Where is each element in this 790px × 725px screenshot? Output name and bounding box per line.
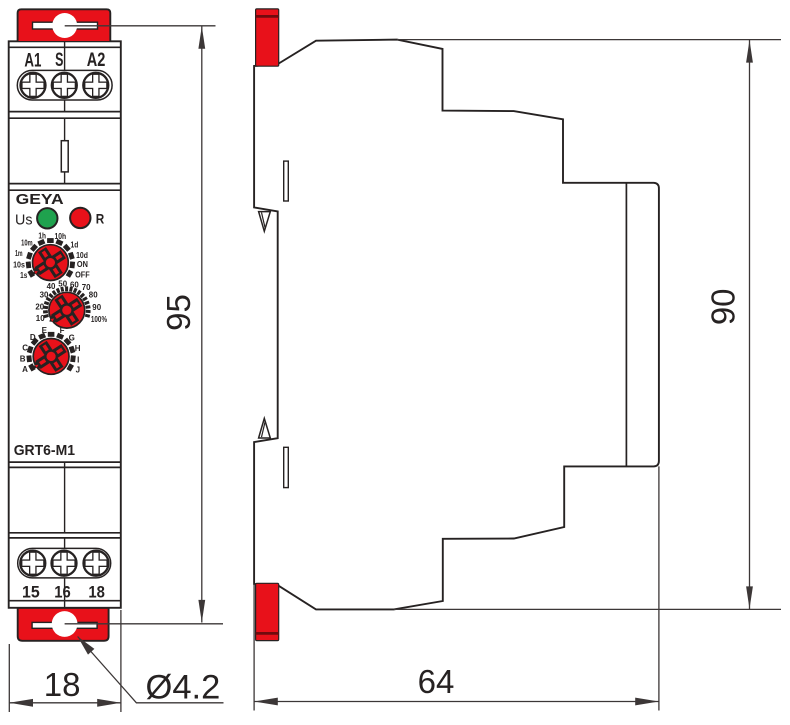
svg-text:OFF: OFF xyxy=(75,271,90,280)
svg-text:95: 95 xyxy=(160,294,197,331)
svg-text:H: H xyxy=(75,344,81,353)
svg-text:B: B xyxy=(20,355,26,364)
svg-text:10d: 10d xyxy=(76,251,88,260)
svg-text:16: 16 xyxy=(54,582,71,601)
svg-text:F: F xyxy=(60,326,65,335)
svg-text:15: 15 xyxy=(22,583,40,602)
svg-text:A2: A2 xyxy=(87,50,106,71)
svg-text:18: 18 xyxy=(88,582,105,601)
svg-text:GEYA: GEYA xyxy=(16,191,64,208)
svg-text:10s: 10s xyxy=(13,260,25,269)
svg-text:1m: 1m xyxy=(15,249,23,258)
svg-text:50: 50 xyxy=(58,280,67,289)
svg-text:20: 20 xyxy=(35,303,44,312)
svg-text:G: G xyxy=(69,333,75,342)
svg-text:100%: 100% xyxy=(91,315,107,324)
svg-text:30: 30 xyxy=(40,290,49,299)
svg-text:90: 90 xyxy=(92,303,101,312)
svg-text:GRT6-M1: GRT6-M1 xyxy=(14,442,75,459)
svg-text:1d: 1d xyxy=(71,241,79,250)
svg-text:Ø4.2: Ø4.2 xyxy=(146,669,221,707)
svg-text:A1: A1 xyxy=(24,50,41,71)
svg-text:Us: Us xyxy=(15,213,32,229)
svg-text:J: J xyxy=(76,366,80,375)
svg-text:1h: 1h xyxy=(38,232,46,241)
svg-text:80: 80 xyxy=(89,291,98,300)
svg-text:A: A xyxy=(22,365,28,374)
svg-text:C: C xyxy=(22,344,28,353)
svg-text:D: D xyxy=(30,333,36,342)
svg-text:S: S xyxy=(55,50,63,71)
svg-text:10m: 10m xyxy=(21,238,33,247)
svg-text:60: 60 xyxy=(70,281,79,290)
svg-text:90: 90 xyxy=(705,288,742,325)
svg-text:1s: 1s xyxy=(20,271,28,280)
svg-text:R: R xyxy=(96,211,105,227)
svg-text:I: I xyxy=(77,356,79,365)
svg-text:10: 10 xyxy=(36,314,45,323)
svg-text:E: E xyxy=(42,326,48,335)
svg-text:ON: ON xyxy=(77,260,88,269)
svg-text:10h: 10h xyxy=(55,232,67,241)
svg-text:18: 18 xyxy=(44,666,81,703)
svg-text:64: 64 xyxy=(418,663,455,700)
